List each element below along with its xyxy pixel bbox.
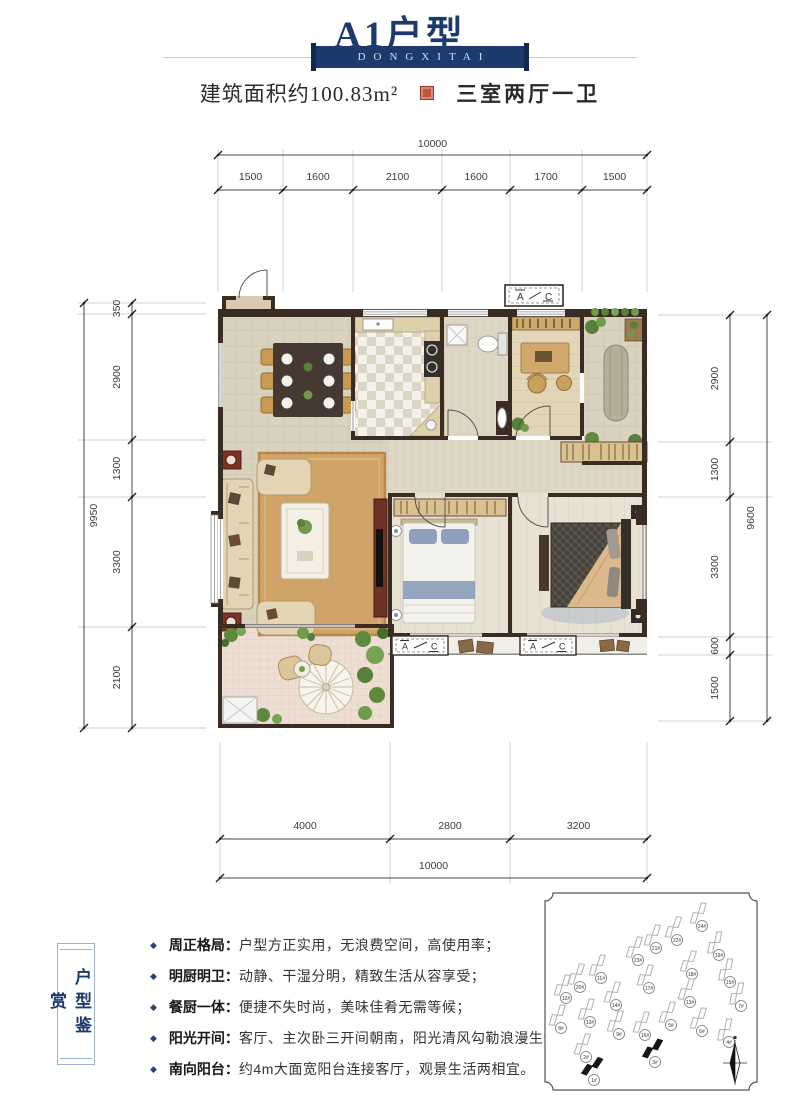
dim-label: 2800 bbox=[438, 820, 462, 832]
building-label: 13# bbox=[686, 1000, 695, 1006]
diamond-bullet-icon: ◆ bbox=[150, 1061, 157, 1077]
dim-label: 1300 bbox=[709, 458, 721, 482]
seal-icon bbox=[420, 86, 434, 100]
dim-label: 1600 bbox=[464, 171, 488, 183]
desk-chair bbox=[528, 375, 546, 393]
building-label: 10# bbox=[586, 1020, 595, 1026]
building-label: 1# bbox=[591, 1078, 597, 1084]
bench bbox=[539, 535, 549, 591]
dim-label: 1500 bbox=[603, 171, 627, 183]
ac-unit-north: A C bbox=[505, 285, 563, 306]
building-label: 6# bbox=[699, 1029, 705, 1035]
feature-title: 周正格局： bbox=[169, 937, 239, 953]
armchair bbox=[257, 459, 311, 495]
dim-label: 9950 bbox=[88, 504, 100, 528]
site-plan: 24#22#21#19#23#18#15#11#20#12#17#14#13#7… bbox=[545, 893, 757, 1090]
window bbox=[642, 525, 646, 599]
diamond-bullet-icon: ◆ bbox=[150, 968, 157, 984]
building-label: 7# bbox=[738, 1004, 744, 1010]
building-label: 18# bbox=[688, 972, 697, 978]
building-label: 12# bbox=[562, 996, 571, 1002]
brand-banner: DONGXITAI bbox=[313, 46, 527, 68]
side-label: 户型鉴赏 bbox=[58, 958, 94, 1050]
feature-desc: 户型方正实用，无浪费空间，高使用率； bbox=[239, 937, 500, 953]
building-label: 16# bbox=[641, 1033, 650, 1039]
diamond-bullet-icon: ◆ bbox=[150, 937, 157, 953]
ac-unit-south-1: A C bbox=[392, 636, 448, 655]
toilet bbox=[478, 336, 498, 352]
feature-desc: 便捷不失时尚，美味佳肴无需等候； bbox=[239, 999, 471, 1015]
dim-label: 9600 bbox=[745, 506, 757, 530]
dim-label: 4000 bbox=[293, 820, 317, 832]
building-label: 9# bbox=[616, 1032, 622, 1038]
feature-desc: 约4m大面宽阳台连接客厅，观景生活两相宜。 bbox=[239, 1061, 535, 1077]
feature-desc: 动静、干湿分明，精致生活从容享受； bbox=[239, 968, 486, 984]
dim-label: 1500 bbox=[239, 171, 263, 183]
building-label: 15# bbox=[726, 980, 735, 986]
ac-letter: A bbox=[530, 642, 536, 652]
layout-label: 三室两厅一卫 bbox=[456, 78, 600, 108]
living-room bbox=[221, 451, 387, 635]
building-label: 14# bbox=[612, 1003, 621, 1009]
building-label: 2# bbox=[583, 1055, 589, 1061]
sink bbox=[498, 408, 507, 428]
building-label: 21# bbox=[652, 946, 661, 952]
sliding-door bbox=[245, 625, 355, 628]
building-label: 8# bbox=[558, 1026, 564, 1032]
feature-title: 南向阳台： bbox=[169, 1061, 239, 1077]
master-bedroom bbox=[539, 505, 645, 624]
building-label: 19# bbox=[715, 953, 724, 959]
diamond-bullet-icon: ◆ bbox=[150, 1030, 157, 1046]
dim-label: 1600 bbox=[306, 171, 330, 183]
building-label: 22# bbox=[673, 938, 682, 944]
floorplan-page: A1户型 DONGXITAI 建筑面积约100.83m² 三室两厅一卫 1000… bbox=[0, 0, 800, 1104]
ac-letter: C bbox=[431, 642, 438, 652]
dim-label: 2100 bbox=[386, 171, 410, 183]
building-label: 23# bbox=[634, 958, 643, 964]
dim-label: 10000 bbox=[418, 138, 447, 150]
dim-label: 2100 bbox=[111, 666, 123, 690]
window bbox=[218, 343, 223, 407]
window bbox=[363, 310, 427, 316]
ac-letter: A bbox=[402, 642, 408, 652]
dim-label: 3300 bbox=[709, 555, 721, 579]
feature-title: 餐厨一体： bbox=[169, 999, 239, 1015]
building-label: 3# bbox=[652, 1060, 658, 1066]
toilet-tank bbox=[498, 333, 507, 355]
window bbox=[448, 310, 488, 316]
building-label: 20# bbox=[576, 985, 585, 991]
floor-plan: A C A C A C bbox=[205, 283, 660, 738]
building-label: 5# bbox=[668, 1023, 674, 1029]
feature-title: 阳光开间： bbox=[169, 1030, 239, 1046]
dim-label: 350 bbox=[111, 300, 123, 318]
bedroom2 bbox=[391, 519, 478, 623]
feature-title: 明厨明卫： bbox=[169, 968, 239, 984]
dim-label: 1300 bbox=[111, 457, 123, 481]
bay-window bbox=[211, 511, 223, 607]
dim-label: 10000 bbox=[419, 860, 448, 872]
side-label-box: 户型鉴赏 bbox=[57, 943, 95, 1065]
building-label: 11# bbox=[597, 976, 605, 982]
dim-label: 1500 bbox=[709, 676, 721, 700]
building-label: 4# bbox=[726, 1040, 732, 1046]
kitchen-door bbox=[351, 401, 355, 431]
window bbox=[517, 310, 565, 316]
dim-label: 3300 bbox=[111, 550, 123, 574]
area-label: 建筑面积约100.83m² bbox=[200, 78, 398, 108]
ac-letter: C bbox=[559, 642, 566, 652]
study-floor bbox=[512, 317, 580, 436]
dim-label: 600 bbox=[709, 637, 721, 655]
dim-label: 1700 bbox=[534, 171, 558, 183]
tv bbox=[376, 529, 383, 587]
diamond-bullet-icon: ◆ bbox=[150, 999, 157, 1015]
dining-area bbox=[261, 343, 355, 417]
dim-label: 3200 bbox=[567, 820, 591, 832]
water-heater bbox=[604, 345, 628, 421]
entry-door bbox=[239, 270, 267, 298]
dim-label: 2900 bbox=[111, 365, 123, 389]
building-label: 17# bbox=[645, 986, 654, 992]
building-label: 24# bbox=[698, 924, 707, 930]
dim-label: 2900 bbox=[709, 367, 721, 391]
coffee-table bbox=[281, 503, 329, 579]
subtitle-row: 建筑面积约100.83m² 三室两厅一卫 bbox=[0, 78, 800, 108]
ac-letter: A bbox=[517, 292, 524, 303]
ac-unit-south-2: A C bbox=[520, 636, 576, 655]
feature-desc: 客厅、主次卧三开间朝南，阳光清风勾勒浪漫生活； bbox=[239, 1030, 573, 1046]
headboard bbox=[621, 519, 631, 609]
